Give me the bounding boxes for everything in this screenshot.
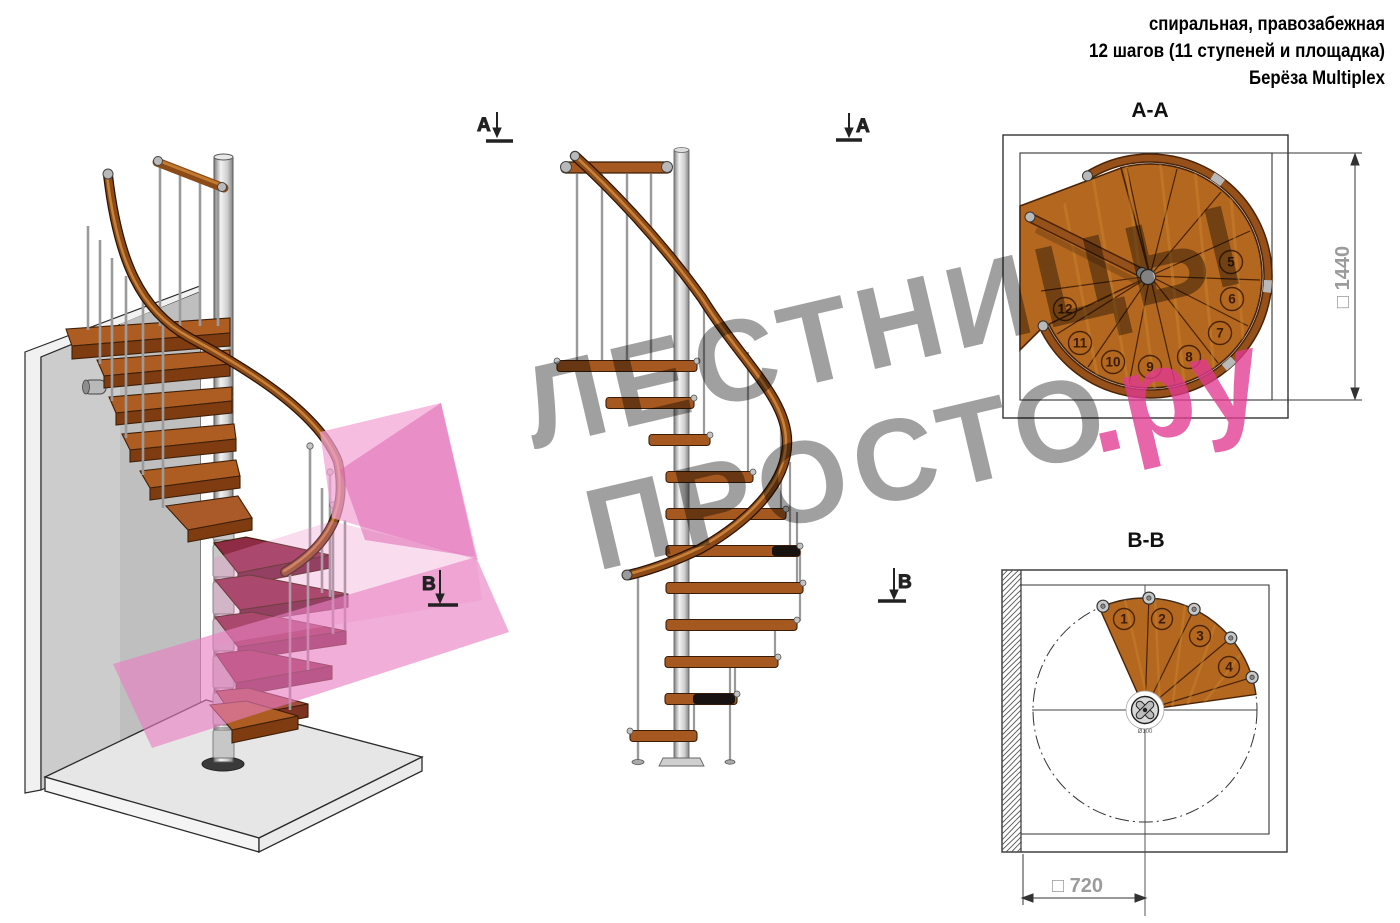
svg-text:спиральная, правозабежная: спиральная, правозабежная	[1149, 14, 1385, 35]
svg-text:А: А	[856, 116, 870, 137]
svg-text:Ø100: Ø100	[1138, 729, 1153, 735]
svg-text:B: B	[898, 572, 912, 593]
svg-text:12 шагов (11 ступеней и площад: 12 шагов (11 ступеней и площадка)	[1089, 41, 1385, 62]
svg-text:4: 4	[1225, 660, 1233, 675]
svg-text:3: 3	[1196, 629, 1204, 644]
svg-text:А-А: А-А	[1131, 99, 1168, 122]
svg-text:А: А	[477, 115, 491, 136]
svg-text:В-В: В-В	[1127, 529, 1164, 552]
svg-text:Берёза Multiplex: Берёза Multiplex	[1249, 68, 1385, 89]
svg-text:□ 1440: □ 1440	[1332, 246, 1354, 308]
svg-text:2: 2	[1158, 612, 1166, 627]
svg-text:1: 1	[1120, 612, 1128, 627]
svg-text:□ 720: □ 720	[1052, 875, 1103, 897]
svg-text:B: B	[422, 574, 436, 595]
